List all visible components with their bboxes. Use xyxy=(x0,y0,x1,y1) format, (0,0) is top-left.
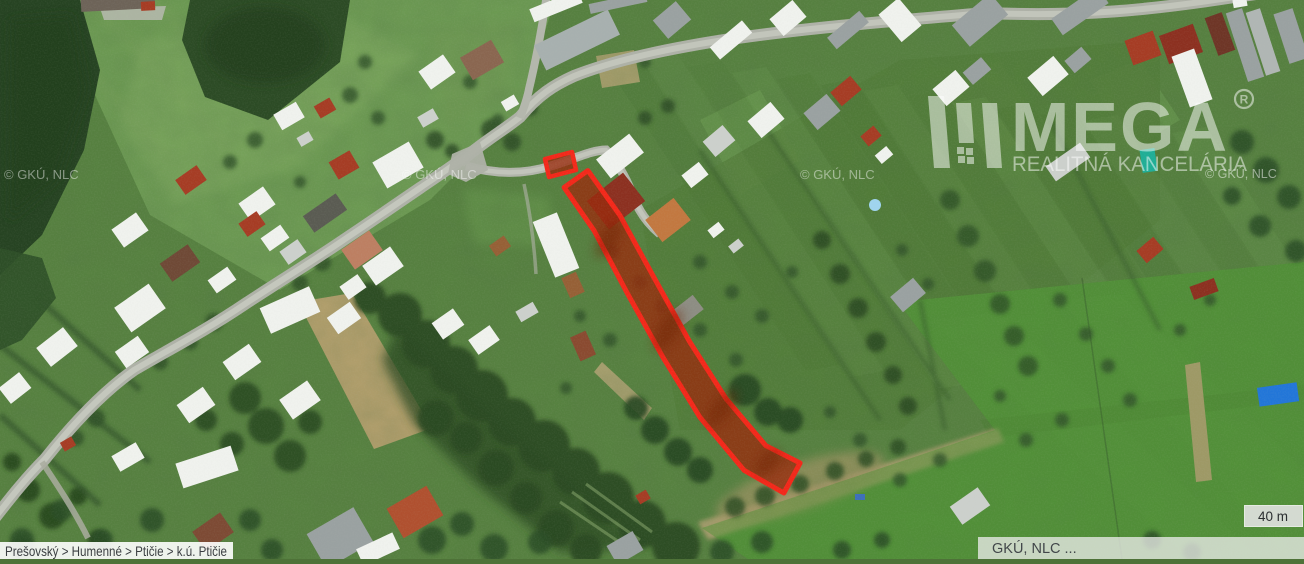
svg-text:© GKÚ, NLC: © GKÚ, NLC xyxy=(402,167,477,182)
svg-text:GKÚ, NLC ...: GKÚ, NLC ... xyxy=(992,540,1077,557)
svg-text:© GKÚ, NLC: © GKÚ, NLC xyxy=(4,167,79,182)
svg-text:© GKÚ, NLC: © GKÚ, NLC xyxy=(800,167,875,182)
svg-text:REALITNÁ KANCELÁRIA: REALITNÁ KANCELÁRIA xyxy=(1012,153,1247,176)
svg-text:R: R xyxy=(1240,93,1249,107)
svg-text:40 m: 40 m xyxy=(1258,509,1288,524)
svg-text:Prešovský > Humenné > Ptičie >: Prešovský > Humenné > Ptičie > k.ú. Ptič… xyxy=(5,544,227,559)
